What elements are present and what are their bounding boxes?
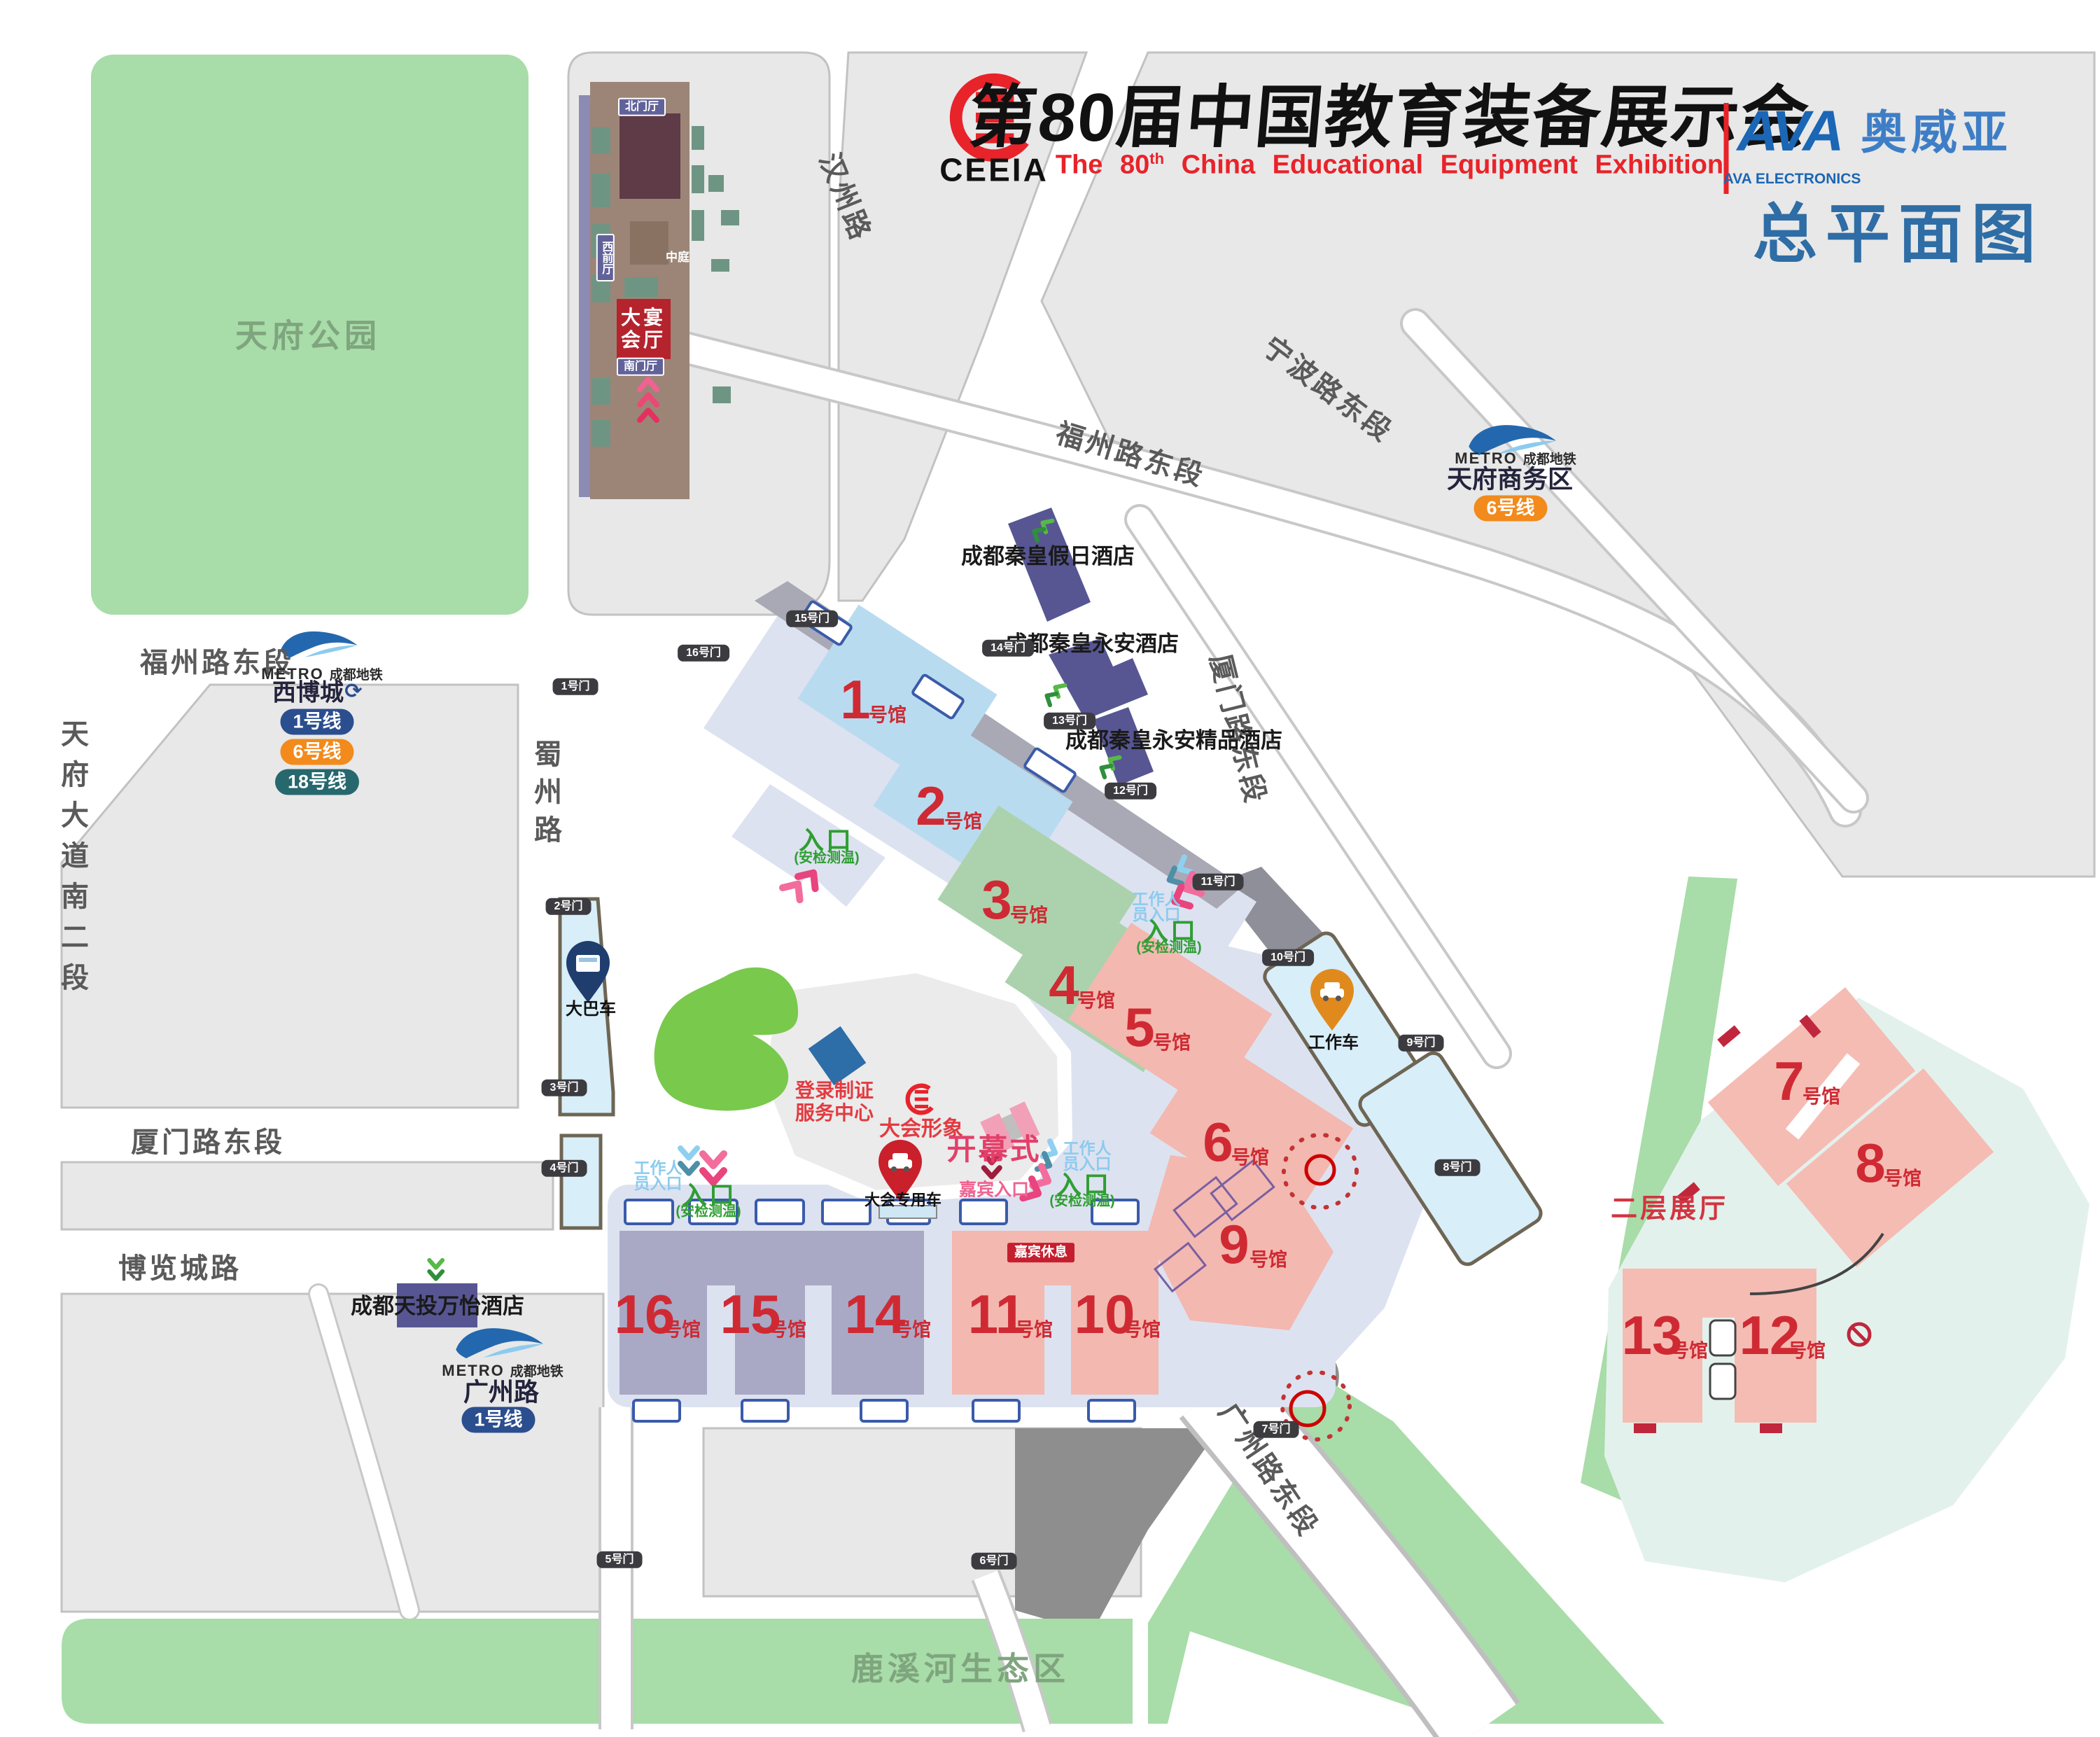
- conference-car-label: 大会专用车: [864, 1191, 941, 1208]
- atrium-label: 中庭: [666, 251, 689, 265]
- ceeia-wordmark: CEEIA: [939, 152, 1049, 189]
- station-xibocheng: 西博城: [272, 679, 344, 706]
- gate-13: 13号门: [1044, 713, 1095, 730]
- exhibition-site-map: CEEIA 第80届中国教育装备展示会 The 80th China Educa…: [0, 0, 2100, 1737]
- gate-14: 14号门: [982, 640, 1034, 657]
- ava-logo-text: AVA ELECTRONICS: [1723, 171, 1861, 188]
- hall-1-number: 1: [840, 669, 870, 732]
- entrance4-arrows: [680, 1148, 724, 1183]
- gate-5: 5号门: [597, 1551, 643, 1568]
- exhibition-title-cn: 第80届中国教育装备展示会: [966, 78, 1814, 157]
- hall-14-suffix: 号馆: [893, 1319, 931, 1341]
- line1-badge-guangzhou: 1号线: [461, 1407, 535, 1432]
- second-floor-label: 二层展厅: [1611, 1194, 1728, 1225]
- line1-badge-xibocheng: 1号线: [280, 709, 353, 734]
- registration-line1: 登录制证: [795, 1080, 874, 1102]
- hall-5-number: 5: [1124, 996, 1154, 1059]
- gate-10: 10号门: [1262, 949, 1314, 966]
- line18-badge-xibocheng: 18号线: [275, 769, 359, 795]
- hotel-wanyi: 成都天投万怡酒店: [351, 1294, 524, 1319]
- work-vehicle-label: 工作车: [1308, 1033, 1359, 1053]
- gate-16: 16号门: [678, 645, 729, 662]
- ava-logo: AVA: [1737, 99, 1842, 165]
- hall-9-number: 9: [1219, 1213, 1249, 1276]
- gate-6: 6号门: [972, 1553, 1017, 1570]
- hall-8-suffix: 号馆: [1884, 1168, 1921, 1190]
- registration-line2: 服务中心: [795, 1102, 874, 1124]
- hall-2-number: 2: [916, 775, 946, 838]
- hall-4-suffix: 号馆: [1077, 990, 1115, 1012]
- road-bolancheng: 博览城路: [118, 1253, 241, 1285]
- road-tianfu-avenue: 天府大道南二段: [56, 719, 88, 1003]
- tianfu-park-label: 天府公园: [235, 318, 381, 355]
- hall-12-suffix: 号馆: [1788, 1340, 1826, 1362]
- hall-2-suffix: 号馆: [944, 811, 982, 832]
- title-en-suffix: China Educational Equipment Exhibition: [1164, 150, 1723, 179]
- map-title: 总平面图: [1753, 198, 2044, 272]
- banquet-hall-label: 大宴会厅: [617, 307, 670, 351]
- west-hall-label: 西前厅: [596, 234, 615, 281]
- road-shuzhou: 蜀州路: [529, 739, 561, 853]
- station-guangzhou-rd: 广州路: [463, 1377, 539, 1406]
- gate-12: 12号门: [1105, 783, 1156, 800]
- hotel-holiday-inn: 成都秦皇假日酒店: [961, 544, 1135, 569]
- gate-1: 1号门: [553, 678, 598, 695]
- hall-16-suffix: 号馆: [663, 1319, 701, 1341]
- gate-7: 7号门: [1254, 1421, 1299, 1438]
- ava-cn-name: 奥威亚: [1861, 106, 2012, 160]
- entrance-2-security: (安检测温): [1136, 940, 1201, 956]
- line6-badge-tianfu: 6号线: [1473, 495, 1547, 521]
- exhibition-title-en: The 80th China Educational Equipment Exh…: [1056, 150, 1723, 181]
- hall-3-number: 3: [981, 869, 1011, 932]
- hall-6-suffix: 号馆: [1231, 1147, 1269, 1169]
- entrance-1-security: (安检测温): [794, 851, 859, 867]
- gate-9: 9号门: [1399, 1035, 1444, 1052]
- bus-label: 大巴车: [566, 1000, 616, 1019]
- hall-13-suffix: 号馆: [1670, 1340, 1708, 1362]
- staff-entrance-4-line2: 员入口: [634, 1174, 682, 1192]
- gate-2: 2号门: [546, 898, 591, 915]
- gate-4: 4号门: [542, 1160, 587, 1177]
- gate-8: 8号门: [1435, 1159, 1480, 1176]
- title-en-prefix: The 80: [1056, 150, 1149, 179]
- south-hall-label: 南门厅: [617, 358, 664, 376]
- gate-15: 15号门: [786, 611, 838, 627]
- hall-5-suffix: 号馆: [1153, 1032, 1191, 1054]
- hall-7-suffix: 号馆: [1802, 1086, 1840, 1108]
- hall-9-suffix: 号馆: [1249, 1249, 1287, 1271]
- gate-3: 3号门: [542, 1080, 587, 1096]
- hall-10-suffix: 号馆: [1123, 1319, 1161, 1341]
- hall-7-number: 7: [1774, 1050, 1804, 1113]
- road-xiamen-left: 厦门路东段: [131, 1126, 285, 1159]
- hotel-yongan-boutique: 成都秦皇永安精品酒店: [1065, 728, 1282, 753]
- guest-entrance-label: 嘉宾入口: [959, 1180, 1029, 1201]
- hall-11-suffix: 号馆: [1015, 1319, 1053, 1341]
- title-en-sup: th: [1149, 150, 1164, 167]
- station-tianfu-cbd: 天府商务区: [1447, 464, 1573, 493]
- hall-4-number: 4: [1049, 954, 1079, 1017]
- north-hall-label: 北门厅: [618, 98, 666, 116]
- line6-badge-xibocheng: 6号线: [280, 739, 353, 765]
- luxi-eco-label: 鹿溪河生态区: [851, 1651, 1070, 1688]
- loop-line-icon: ⟳: [344, 680, 362, 704]
- hall-1-suffix: 号馆: [869, 704, 906, 726]
- entrance-4-security: (安检测温): [675, 1204, 741, 1220]
- opening-ceremony-label: 开幕式: [946, 1133, 1041, 1166]
- hall-8-number: 8: [1855, 1132, 1885, 1195]
- entrance-3-security: (安检测温): [1049, 1194, 1114, 1210]
- guest-lounge-badge: 嘉宾休息: [1007, 1243, 1074, 1262]
- hall-6-number: 6: [1203, 1111, 1233, 1174]
- gate-11: 11号门: [1193, 874, 1244, 891]
- hall-3-suffix: 号馆: [1010, 905, 1048, 926]
- hall-15-suffix: 号馆: [769, 1319, 806, 1341]
